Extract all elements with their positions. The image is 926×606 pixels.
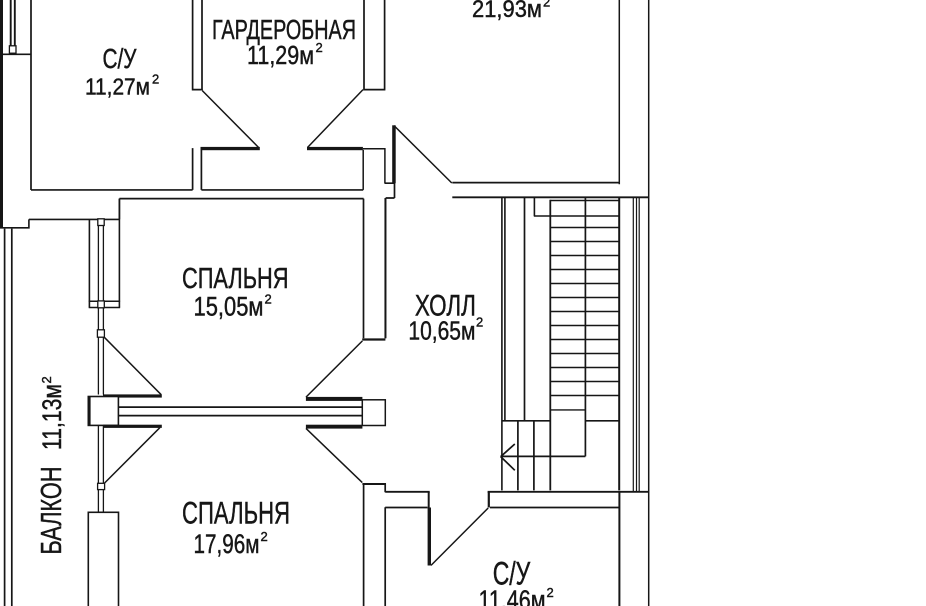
svg-text:2: 2 [316,40,323,55]
svg-text:2: 2 [543,0,550,10]
svg-text:2: 2 [39,376,54,383]
svg-text:11,46м: 11,46м [479,585,546,606]
svg-text:2: 2 [265,292,272,307]
svg-text:2: 2 [476,315,483,330]
svg-text:11,29м: 11,29м [247,40,314,70]
svg-text:СПАЛЬНЯ: СПАЛЬНЯ [182,495,290,531]
svg-text:2: 2 [547,585,554,600]
svg-text:2: 2 [152,72,159,87]
svg-text:10,65м: 10,65м [408,315,475,345]
svg-text:2: 2 [261,529,268,544]
svg-text:СПАЛЬНЯ: СПАЛЬНЯ [182,263,289,295]
svg-text:15,05м: 15,05м [194,291,264,321]
svg-text:БАЛКОН: БАЛКОН [36,467,68,555]
svg-text:21,93м: 21,93м [472,0,542,23]
svg-text:11,13м: 11,13м [37,384,67,450]
svg-text:11,27м: 11,27м [85,73,150,99]
svg-text:17,96м: 17,96м [194,529,260,559]
svg-text:С/У: С/У [103,43,137,74]
